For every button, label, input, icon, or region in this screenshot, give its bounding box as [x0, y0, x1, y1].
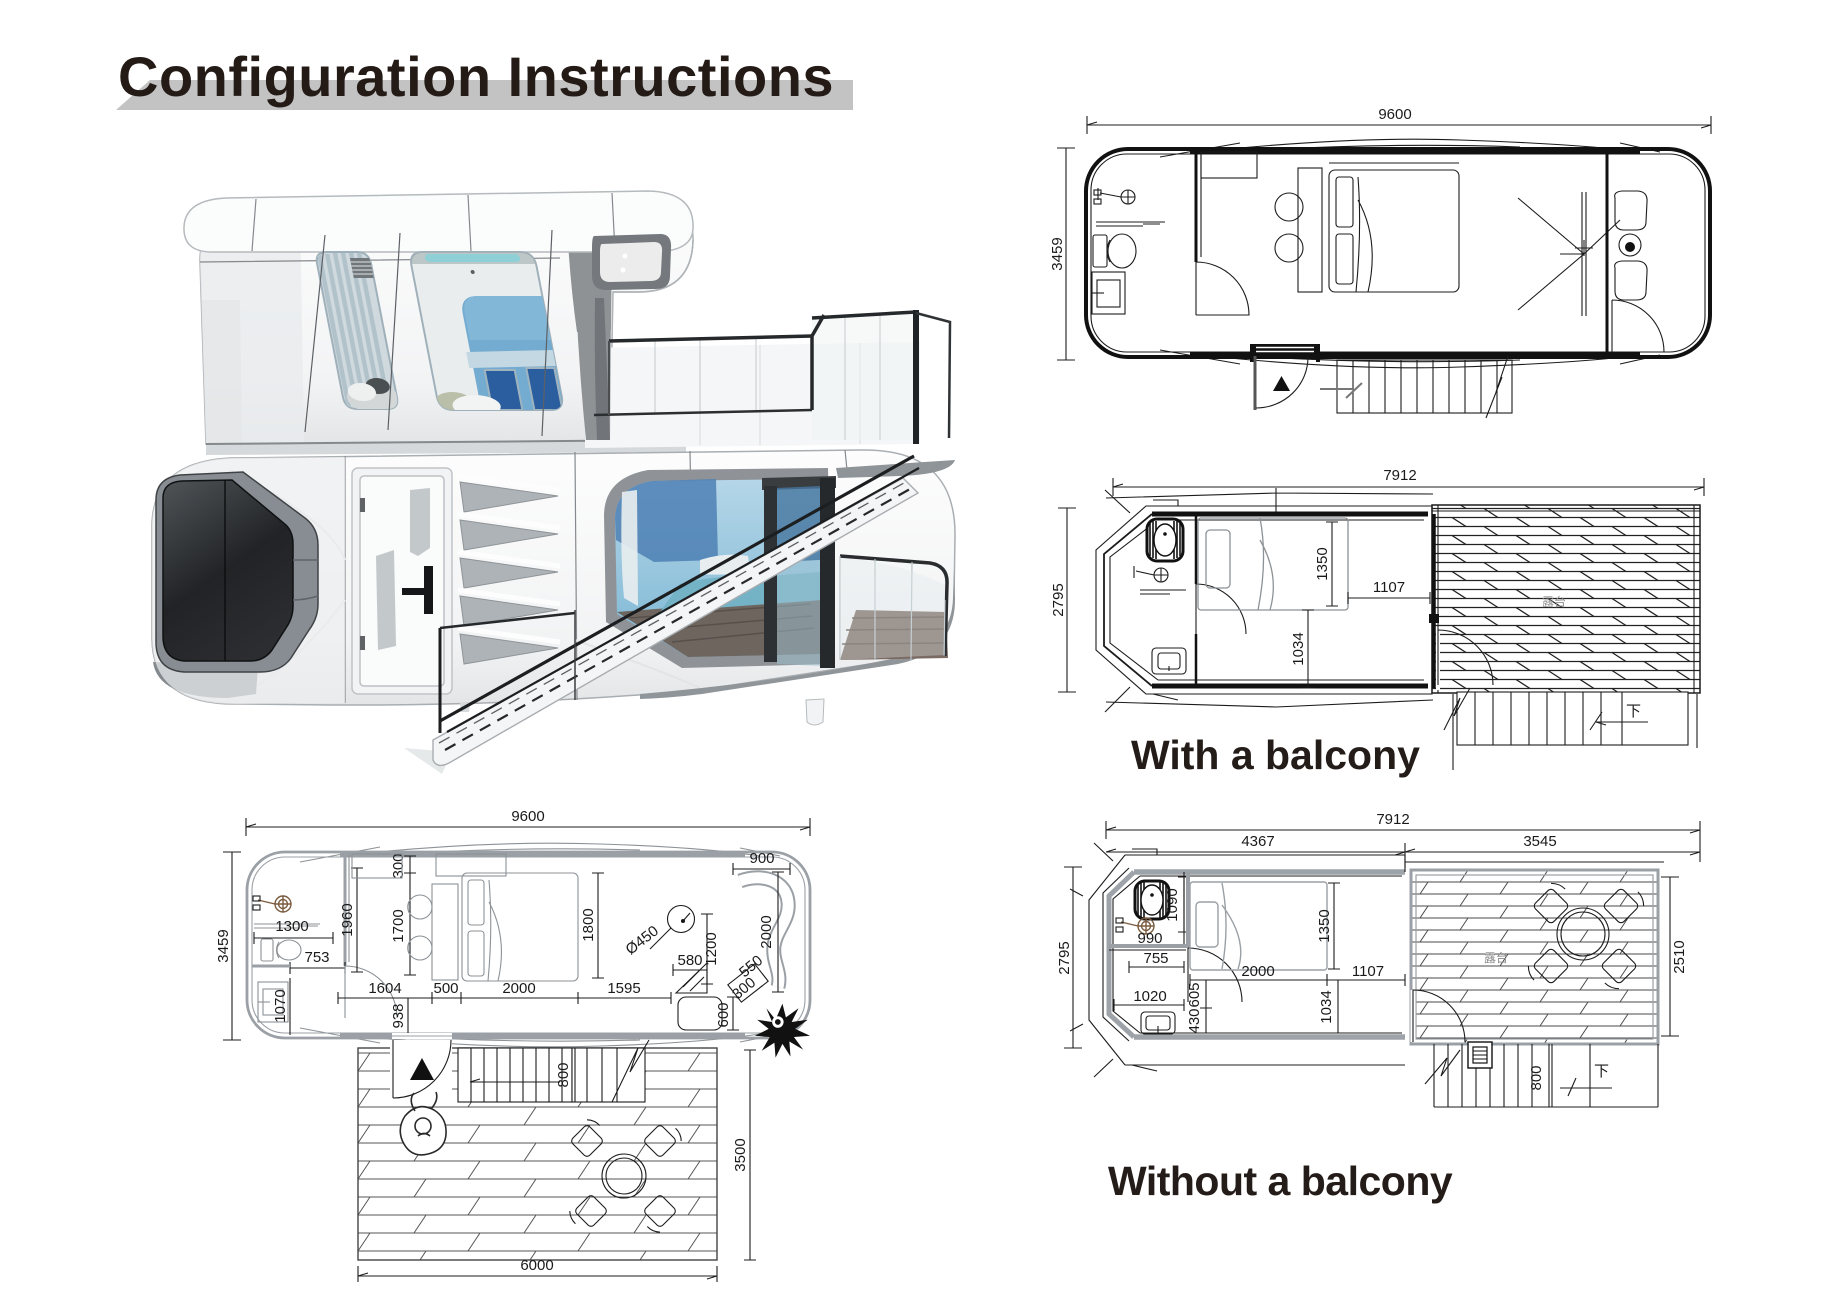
svg-text:9600: 9600 [1378, 106, 1411, 123]
svg-text:1034: 1034 [1290, 632, 1307, 665]
svg-text:1200: 1200 [703, 932, 720, 965]
svg-text:1700: 1700 [390, 909, 407, 942]
svg-text:下: 下 [1626, 703, 1641, 720]
svg-text:605: 605 [1186, 982, 1203, 1007]
svg-text:938: 938 [390, 1003, 407, 1028]
svg-text:With a balcony: With a balcony [1131, 732, 1420, 778]
svg-text:1350: 1350 [1314, 547, 1331, 580]
svg-text:1300: 1300 [275, 918, 308, 935]
svg-text:300: 300 [390, 853, 407, 878]
svg-text:3459: 3459 [1049, 237, 1066, 270]
svg-text:1350: 1350 [1316, 909, 1333, 942]
svg-text:600: 600 [715, 1002, 732, 1027]
svg-text:500: 500 [433, 980, 458, 997]
svg-text:9600: 9600 [511, 808, 544, 825]
svg-text:露台: 露台 [1542, 594, 1566, 609]
svg-text:2795: 2795 [1050, 583, 1067, 616]
svg-text:800: 800 [1528, 1065, 1545, 1090]
svg-text:2000: 2000 [502, 980, 535, 997]
svg-text:1604: 1604 [368, 980, 401, 997]
svg-text:1034: 1034 [1318, 990, 1335, 1023]
svg-text:755: 755 [1143, 950, 1168, 967]
svg-text:Without a balcony: Without a balcony [1108, 1158, 1453, 1204]
svg-text:900: 900 [749, 850, 774, 867]
svg-text:1107: 1107 [1373, 579, 1405, 596]
svg-text:1090: 1090 [1164, 888, 1181, 921]
svg-text:430: 430 [1186, 1008, 1203, 1033]
svg-text:Configuration Instructions: Configuration Instructions [118, 45, 834, 108]
svg-text:1960: 1960 [339, 903, 356, 936]
svg-text:1800: 1800 [580, 908, 597, 941]
svg-text:3545: 3545 [1523, 833, 1556, 850]
svg-text:1595: 1595 [607, 980, 640, 997]
svg-text:1070: 1070 [272, 989, 289, 1022]
svg-text:580: 580 [677, 952, 702, 969]
svg-text:3500: 3500 [732, 1138, 749, 1171]
svg-text:2510: 2510 [1671, 940, 1688, 973]
svg-text:6000: 6000 [520, 1257, 553, 1274]
svg-text:4367: 4367 [1241, 833, 1274, 850]
svg-text:2795: 2795 [1056, 941, 1073, 974]
svg-text:下: 下 [1594, 1063, 1609, 1080]
svg-text:3459: 3459 [215, 929, 232, 962]
svg-text:800: 800 [555, 1062, 572, 1087]
svg-text:1107: 1107 [1352, 963, 1384, 980]
svg-text:2000: 2000 [758, 915, 775, 948]
svg-text:753: 753 [304, 949, 329, 966]
svg-text:露台: 露台 [1484, 950, 1508, 965]
svg-text:1020: 1020 [1133, 988, 1166, 1005]
svg-text:2000: 2000 [1241, 963, 1274, 980]
svg-text:7912: 7912 [1383, 467, 1416, 484]
svg-text:7912: 7912 [1376, 811, 1409, 828]
